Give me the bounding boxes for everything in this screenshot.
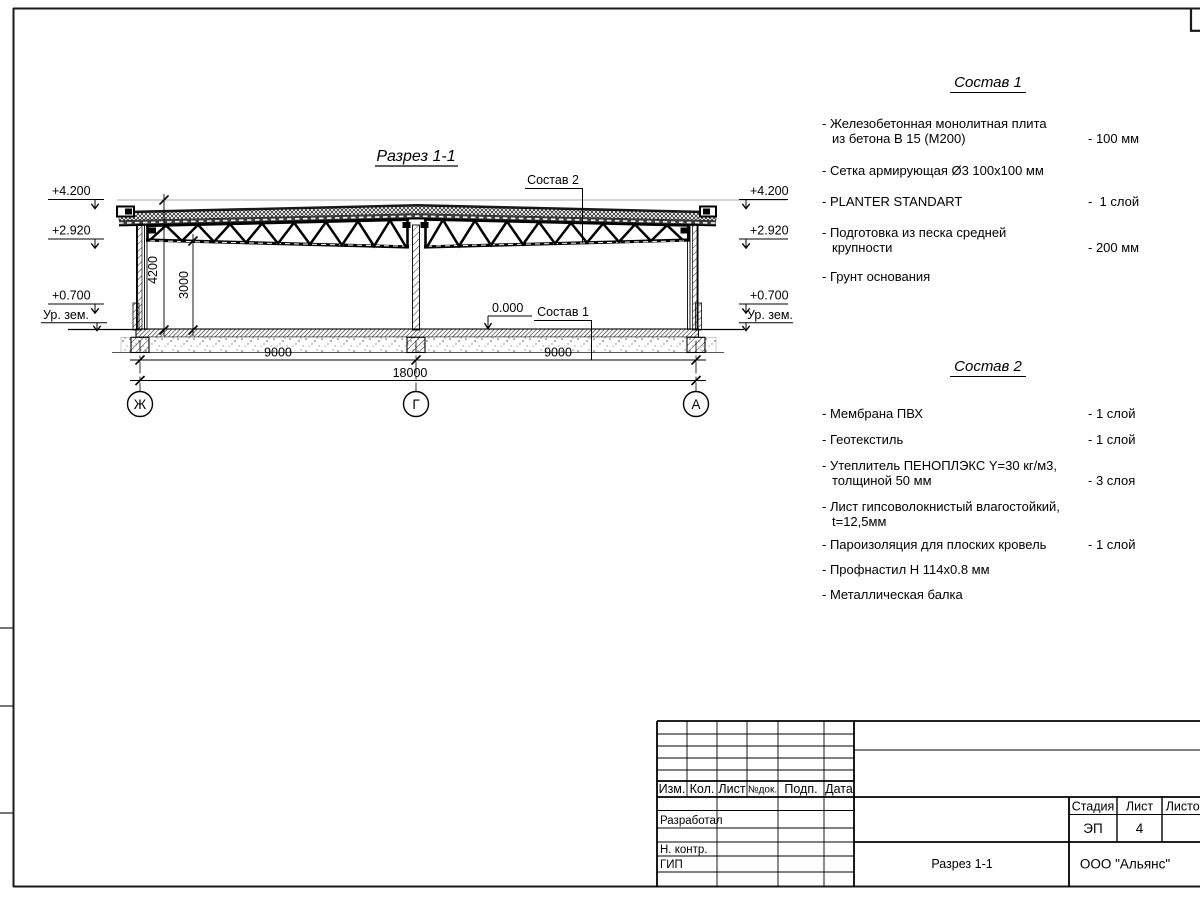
material-row: - Лист гипсоволокнистый влагостойкий, t=…	[822, 499, 1154, 529]
elevation-marks-left: +4.200 +2.920 +0.700 Ур. зем.	[41, 184, 107, 331]
material-name: - Подготовка из песка средней крупности	[822, 225, 1088, 255]
tb-role-gip: ГИП	[660, 859, 683, 871]
material-name: - Металлическая балка	[822, 587, 1088, 602]
tb-role-ncontrol: Н. контр.	[660, 844, 707, 856]
tb-sheet-value: 4	[1136, 821, 1144, 836]
material-value: - 100 мм	[1088, 131, 1154, 146]
column-middle	[413, 225, 420, 330]
material-row: - Геотекстиль - 1 слой	[822, 432, 1154, 447]
callout-roof-label: Состав 2	[527, 173, 579, 187]
ground-level-label: Ур. зем.	[747, 308, 793, 322]
elevation-label: +0.700	[750, 289, 789, 303]
floor-slab	[136, 329, 699, 337]
dim-span-right: 9000	[544, 346, 572, 360]
material-row: - Профнастил Н 114x0.8 мм	[822, 562, 1154, 577]
tb-role-developer: Разработал	[660, 815, 723, 827]
dim-span-left: 9000	[264, 346, 292, 360]
material-row: - Утеплитель ПЕНОПЛЭКС Y=30 кг/м3, толщи…	[822, 458, 1154, 488]
material-row: - Грунт основания	[822, 269, 1154, 284]
drawing-sheet-page: { "section": { "title": "Разрез 1-1", "c…	[0, 0, 1200, 900]
material-name: - Грунт основания	[822, 269, 1088, 284]
material-row: - Мембрана ПВХ - 1 слой	[822, 406, 1154, 421]
eave-cap-left	[117, 207, 134, 217]
tb-stage-label: Стадия	[1072, 800, 1115, 814]
tb-sheet-label: Лист	[1126, 800, 1153, 814]
wall-right	[688, 224, 702, 330]
material-name: - Геотекстиль	[822, 432, 1088, 447]
material-name: - Железобетонная монолитная плита из бет…	[822, 116, 1088, 146]
section-title: Разрез 1-1	[376, 148, 455, 165]
material-value: - 1 слой	[1088, 432, 1154, 447]
material-row: - Железобетонная монолитная плита из бет…	[822, 116, 1154, 146]
zero-level-label: 0.000	[492, 301, 523, 315]
tb-header-podp: Подп.	[784, 782, 817, 796]
material-value: - 200 мм	[1088, 240, 1154, 255]
tb-company: ООО "Альянс"	[1080, 857, 1170, 872]
tb-doc-title: Разрез 1-1	[931, 857, 992, 871]
material-name: - Сетка армирующая Ø3 100x100 мм	[822, 163, 1088, 178]
wall-left	[133, 224, 147, 330]
eave-cap-right	[700, 207, 716, 217]
material-name: - Профнастил Н 114x0.8 мм	[822, 562, 1088, 577]
elevation-label: +2.920	[750, 224, 789, 238]
material-row: - Металлическая балка	[822, 587, 1154, 602]
title-block: Изм. Кол. Лист №док. Подп. Дата Разработ…	[657, 721, 1200, 887]
material-name: - PLANTER STANDART	[822, 194, 1088, 209]
corner-stamp-box	[1190, 9, 1200, 32]
dim-height-full: 4200	[146, 256, 160, 284]
material-row: - Сетка армирующая Ø3 100x100 мм	[822, 163, 1154, 178]
material-value: - 1 слой	[1088, 537, 1154, 552]
elevation-label: +4.200	[750, 184, 789, 198]
elevation-label: +4.200	[52, 184, 91, 198]
axis-label-right: А	[691, 397, 700, 412]
tb-stage-value: ЭП	[1083, 821, 1102, 836]
elevation-label: +0.700	[52, 289, 91, 303]
material-row: - PLANTER STANDART - 1 слой	[822, 194, 1154, 209]
axis-label-middle: Г	[412, 397, 420, 412]
material-name: - Лист гипсоволокнистый влагостойкий, t=…	[822, 499, 1088, 529]
tb-header-izm: Изм.	[659, 782, 686, 796]
material-row: - Подготовка из песка средней крупности …	[822, 225, 1154, 255]
dim-span-total: 18000	[393, 366, 428, 380]
elevation-label: +2.920	[52, 224, 91, 238]
axis-bubbles: Ж Г А	[128, 392, 709, 417]
ground-level-label: Ур. зем.	[43, 308, 89, 322]
dim-height-clear: 3000	[177, 271, 191, 299]
tb-header-ndok: №док.	[748, 785, 777, 796]
material-value: - 1 слой	[1088, 406, 1154, 421]
zero-level-mark: 0.000	[485, 301, 533, 329]
material-name: - Мембрана ПВХ	[822, 406, 1088, 421]
axis-label-left: Ж	[134, 397, 147, 412]
composition-list-1: Состав 1 - Железобетонная монолитная пли…	[822, 74, 1154, 284]
tb-header-data: Дата	[825, 782, 853, 796]
material-value: - 3 слоя	[1088, 473, 1154, 488]
tb-header-kol: Кол.	[690, 782, 715, 796]
composition-2-title: Состав 2	[822, 358, 1154, 376]
elevation-marks-right: +4.200 +2.920 +0.700 Ур. зем.	[739, 184, 793, 331]
material-row: - Пароизоляция для плоских кровель - 1 с…	[822, 537, 1154, 552]
callout-floor-label: Состав 1	[537, 305, 589, 319]
material-value: - 1 слой	[1088, 194, 1154, 209]
composition-1-title: Состав 1	[822, 74, 1154, 92]
roof-assembly	[117, 200, 787, 226]
composition-list-2: Состав 2 - Мембрана ПВХ - 1 слой - Геоте…	[822, 358, 1154, 602]
tb-header-list: Лист	[718, 782, 745, 796]
material-name: - Утеплитель ПЕНОПЛЭКС Y=30 кг/м3, толщи…	[822, 458, 1088, 488]
tb-sheets-label: Листов	[1166, 800, 1200, 814]
material-name: - Пароизоляция для плоских кровель	[822, 537, 1088, 552]
